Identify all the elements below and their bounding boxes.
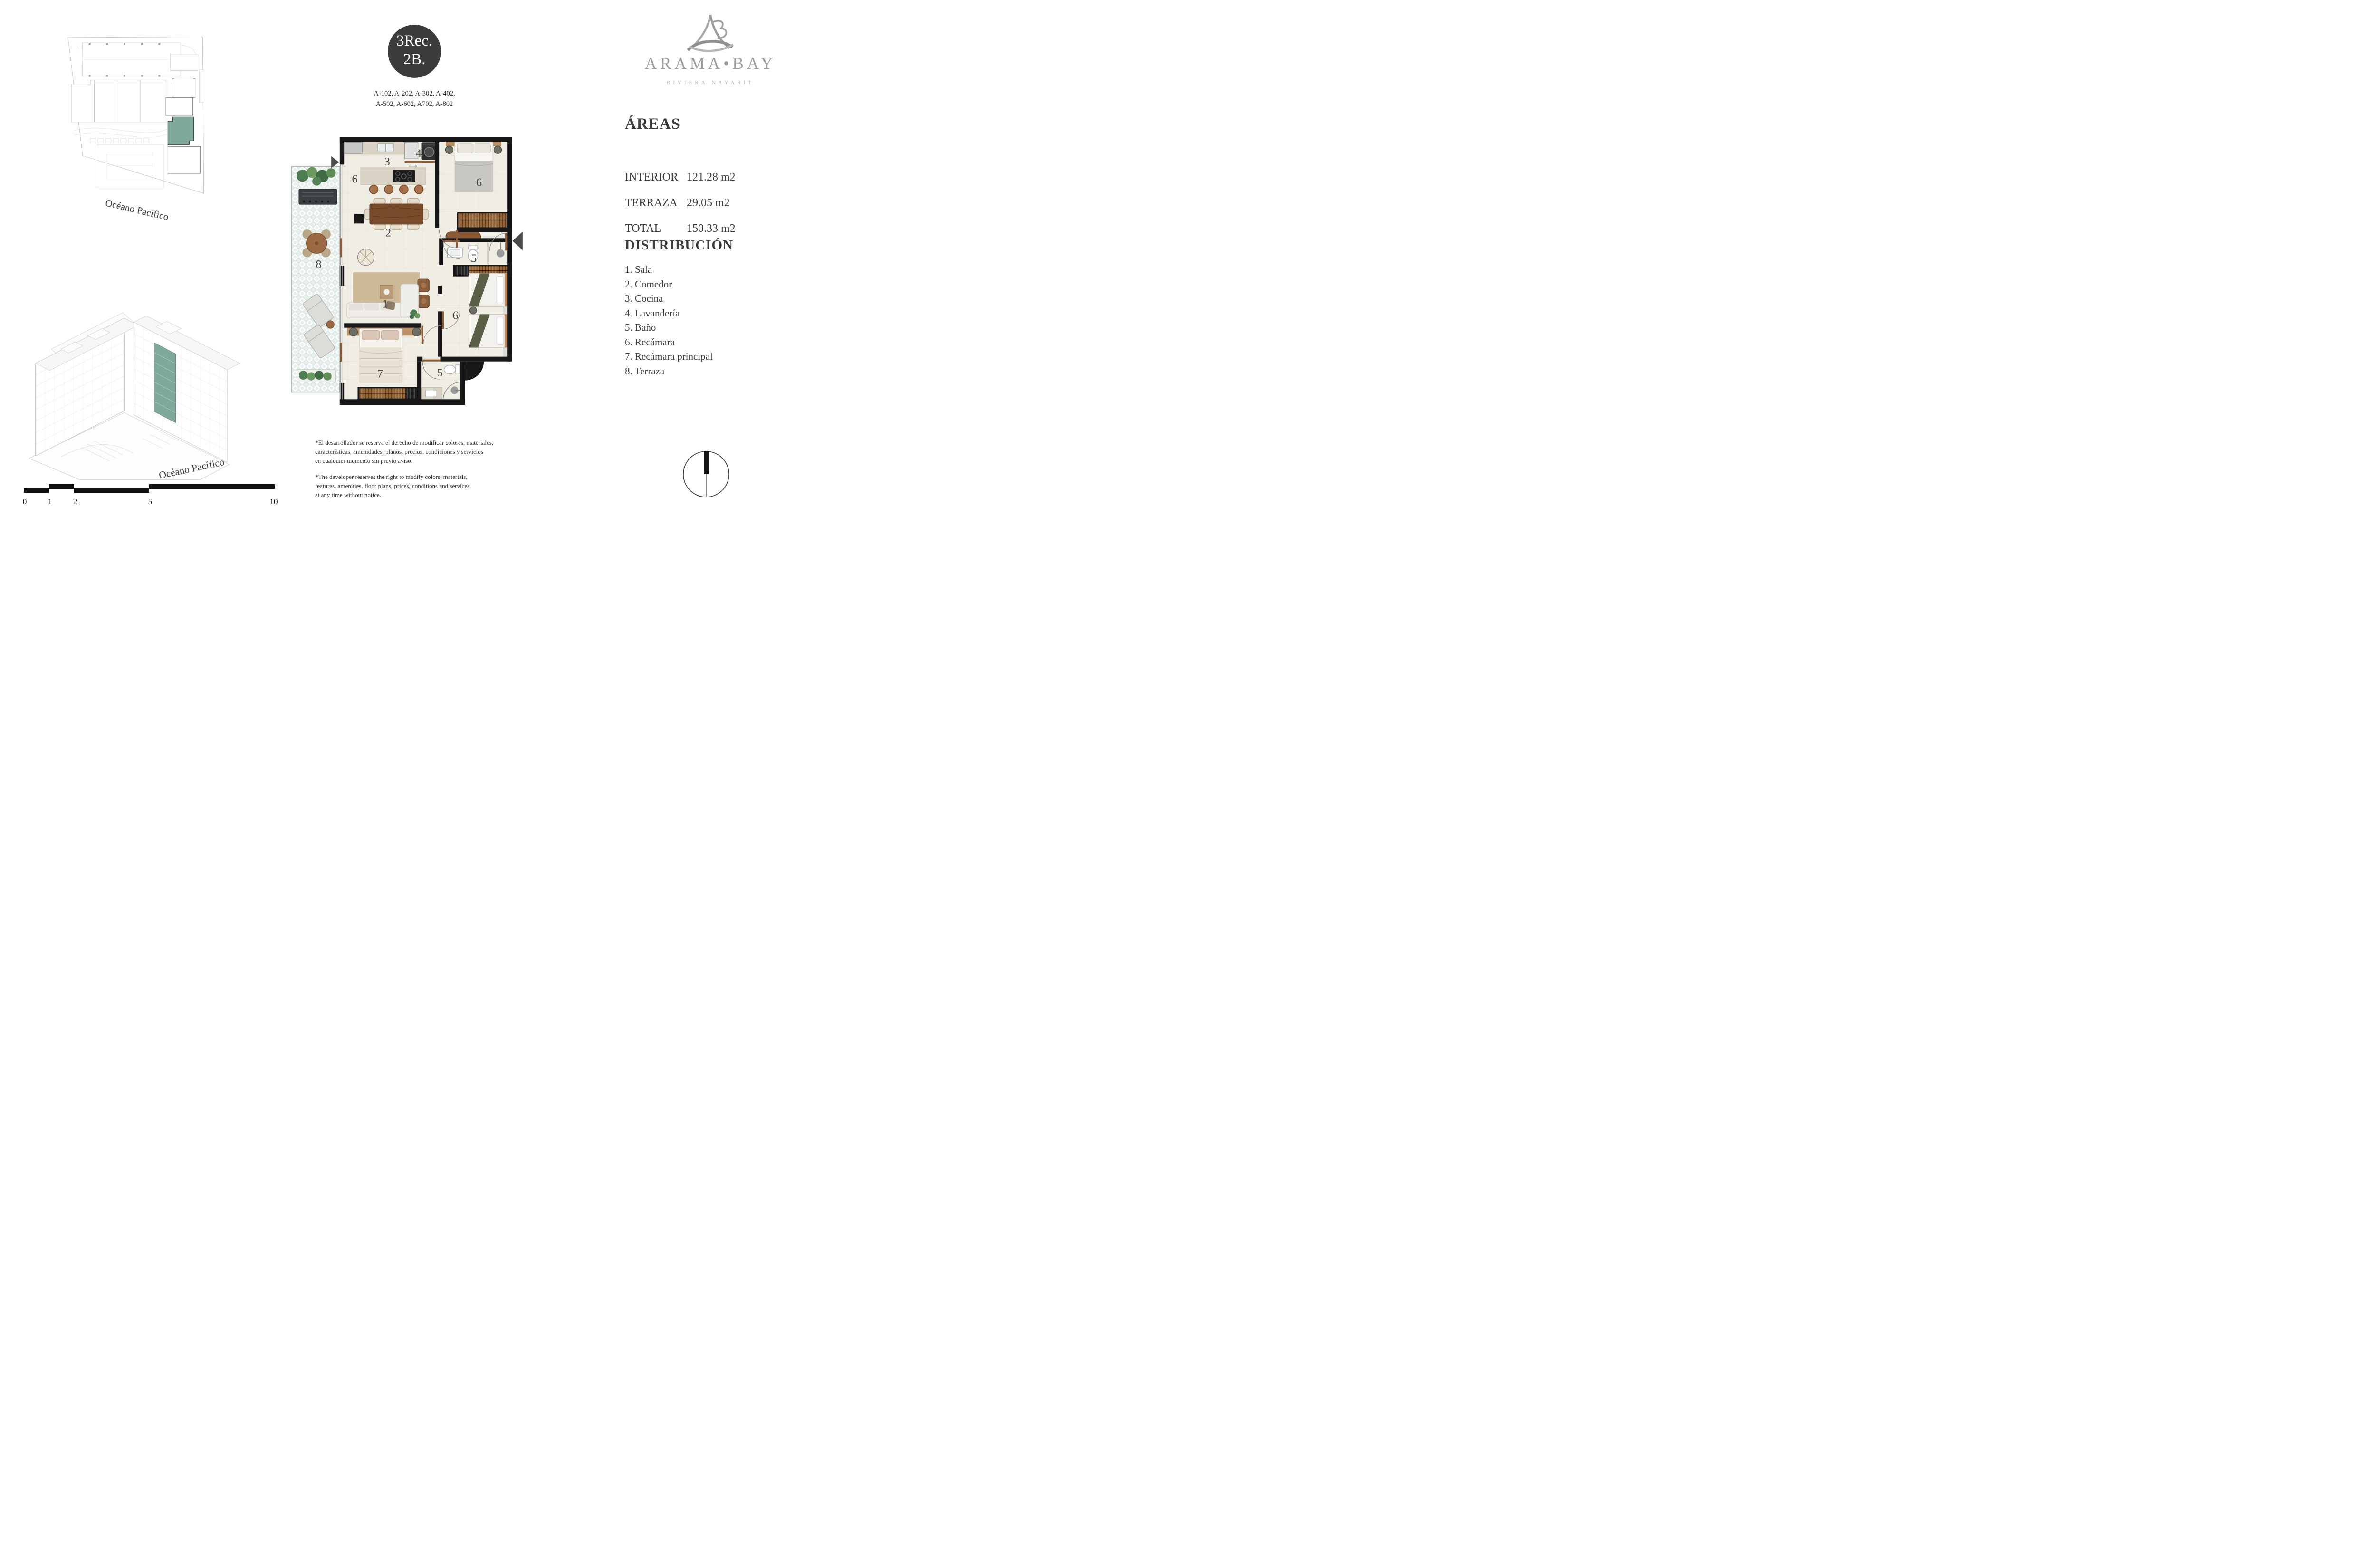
scale-bar: 0 1 2 5 10 (24, 484, 280, 512)
brand-tagline: RIVIERA NAYARIT (620, 80, 801, 86)
disclaimer-es-line: *El desarrollador se reserva el derecho … (315, 438, 524, 447)
room-label-sala: 1 (383, 298, 388, 310)
area-row-terraza: TERRAZA 29.05 m2 (625, 197, 782, 222)
fridge (345, 142, 363, 153)
disclaimer-es-line: en cualquier momento sin previo aviso. (315, 456, 524, 465)
scale-segment (49, 484, 74, 489)
laundry-door-leaf (405, 161, 437, 163)
toilet (444, 365, 456, 374)
unit-numbers: A-102, A-202, A-302, A-402, A-502, A-602… (340, 88, 489, 109)
distribution-item: 4. Lavandería (625, 306, 713, 321)
master-closet (358, 387, 421, 400)
area-value: 29.05 m2 (687, 197, 782, 210)
scale-tick: 1 (48, 497, 52, 507)
scale-segment (74, 488, 149, 493)
highlighted-unit (168, 117, 193, 144)
disclaimer-en-line: *The developer reserves the right to mod… (315, 472, 524, 481)
scale-segment (149, 484, 275, 489)
distribution-item: 2. Comedor (625, 277, 713, 292)
grill (299, 189, 337, 204)
room-label-lavanderia: 4 (416, 148, 422, 160)
distribution-item: 6. Recámara (625, 335, 713, 350)
room-label-comedor: 2 (385, 227, 391, 239)
scale-tick: 5 (148, 497, 153, 507)
distribution-item: 3. Cocina (625, 291, 713, 306)
section-marker-right (513, 231, 523, 250)
basket (470, 307, 477, 314)
distribution-item: 5. Baño (625, 320, 713, 335)
distribution-item: 8. Terraza (625, 364, 713, 379)
distribution-list: 1. Sala 2. Comedor 3. Cocina 4. Lavander… (625, 262, 713, 378)
distribution-item: 1. Sala (625, 262, 713, 277)
building-blocks (71, 80, 167, 122)
areas-table: INTERIOR 121.28 m2 TERRAZA 29.05 m2 TOTA… (625, 171, 782, 248)
area-value: 150.33 m2 (687, 222, 782, 235)
area-label: TERRAZA (625, 197, 687, 210)
scale-tick: 2 (73, 497, 77, 507)
area-row-interior: INTERIOR 121.28 m2 (625, 171, 782, 197)
room-label-bano-central: 5 (471, 252, 477, 265)
north-needle (704, 451, 709, 474)
disclaimer-es-line: características, amenidades, planos, pre… (315, 447, 524, 456)
badge-line1: 3Rec. (388, 32, 441, 50)
flyer-page: Océano Pacífico (0, 0, 808, 523)
area-label: INTERIOR (625, 171, 687, 184)
terrace-planter (297, 370, 336, 382)
dining (364, 198, 428, 229)
room-label-recamara-principal: 7 (377, 368, 383, 381)
scale-tick: 10 (270, 497, 278, 507)
disclaimer-en-line: features, amenities, floor plans, prices… (315, 481, 524, 490)
toilet-tank (456, 365, 460, 374)
room-label-recamara-sur: 6 (453, 309, 459, 322)
unit-numbers-line2: A-502, A-602, A702, A-802 (340, 99, 489, 109)
building-isometric: Océano Pacífico (13, 275, 253, 486)
room-label-terraza: 8 (316, 258, 322, 271)
brand-monogram (686, 13, 735, 54)
scale-segment (24, 488, 49, 493)
area-label: TOTAL (625, 222, 687, 235)
ocean-label-siteplan: Océano Pacífico (104, 198, 169, 222)
floor-plan: 8 (291, 137, 523, 405)
highlighted-stack (154, 343, 176, 422)
toilet-tank (469, 246, 478, 249)
unit-type-badge: 3Rec. 2B. (388, 25, 441, 78)
nightstand-basket (446, 146, 453, 153)
shower-head (497, 249, 505, 258)
room-label-bano-sur: 5 (437, 367, 443, 379)
site-plan: Océano Pacífico (67, 36, 205, 233)
bedroom-south (469, 273, 508, 357)
disclaimer-en-line: at any time without notice. (315, 490, 524, 499)
north-compass-icon (680, 448, 733, 501)
areas-title: ÁREAS (625, 115, 680, 133)
distribution-title: DISTRIBUCIÓN (625, 238, 733, 253)
badge-line2: 2B. (388, 50, 441, 69)
room-label-cocina: 3 (384, 156, 390, 168)
terrace-dining-set (303, 229, 331, 257)
brand-wordmark: ARAMA•BAY (620, 54, 801, 73)
bed-single-1 (469, 273, 508, 306)
bed-single-2 (469, 314, 508, 347)
room-label-pasillo: 6 (352, 173, 358, 186)
scale-tick: 0 (23, 497, 27, 507)
room-label-recamara-norte: 6 (476, 176, 482, 189)
dining-table (370, 204, 423, 224)
nightstand-basket (494, 146, 502, 153)
terrace: 8 (291, 166, 340, 392)
disclaimer: *El desarrollador se reserva el derecho … (315, 438, 524, 499)
area-value: 121.28 m2 (687, 171, 782, 184)
distribution-item: 7. Recámara principal (625, 349, 713, 364)
side-table (326, 321, 334, 328)
unit-numbers-line1: A-102, A-202, A-302, A-402, (340, 88, 489, 99)
